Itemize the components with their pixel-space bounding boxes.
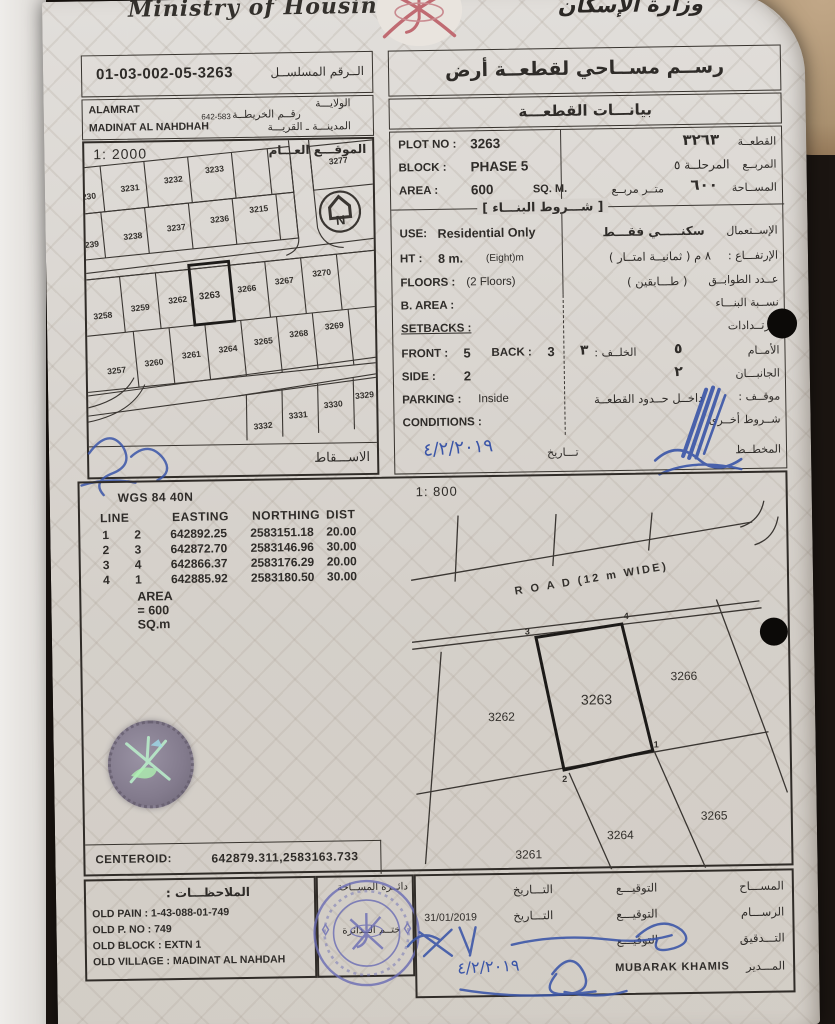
back-label-ar: الخلــف : <box>594 346 636 360</box>
cell: 1 <box>135 573 142 587</box>
floors-label: FLOORS : <box>400 277 455 290</box>
front-label: FRONT : <box>401 348 448 361</box>
drawing-title: رســم مســاحي لقطعــة أرض <box>389 54 780 82</box>
col-easting: EASTING <box>172 509 229 524</box>
side-value-ar: ٢ <box>674 364 683 380</box>
use-value-ar: سكنـــــي فقـــط <box>602 224 704 240</box>
svg-text:3259: 3259 <box>130 302 150 314</box>
notes-title: الملاحظـــات : <box>166 885 250 900</box>
handwritten-date: ٤/٢/٢٠١٩ <box>422 435 493 461</box>
datum-label: WGS 84 40N <box>118 490 194 505</box>
plan-plot-right: 3266 <box>670 669 697 683</box>
plot-no-label: PLOT NO : <box>398 139 456 152</box>
cell: 2583176.29 <box>251 555 315 570</box>
corner-4: 4 <box>624 611 629 621</box>
centeroid-value: 642879.311,2583163.733 <box>211 849 358 865</box>
serial-number-value: 01-03-002-05-3263 <box>96 64 233 83</box>
area-label: AREA : <box>399 185 438 198</box>
note-line: OLD P. NO : 749 <box>92 923 171 936</box>
plan-plot-bottom-mid: 3264 <box>607 828 634 842</box>
location-box: ALAMRAT MADINAT AL NAHDHAH الولايـــة رق… <box>81 95 374 141</box>
cell: 1 <box>102 528 109 542</box>
area-unit-ar: متــر مربــع <box>611 182 664 196</box>
area-label-ar: المســاحة <box>732 181 777 195</box>
svg-text:3265: 3265 <box>253 335 273 347</box>
area-note: AREA = 600 SQ.m <box>137 589 173 632</box>
plot-no-value-ar: ٣٢٦٣ <box>682 130 719 149</box>
cell: 4 <box>135 558 142 572</box>
height-label: HT : <box>400 253 423 265</box>
north-arrow-icon: N <box>318 190 362 234</box>
conditions-label: CONDITIONS : <box>402 416 481 429</box>
plot-no-label-ar: القطعــة <box>737 135 776 149</box>
wilayat-value: ALAMRAT <box>89 104 140 117</box>
plot-data-header: بيانـــات القطعـــة <box>390 98 781 122</box>
svg-text:3263: 3263 <box>198 289 220 302</box>
cell: 20.00 <box>326 524 356 538</box>
cell: 642872.70 <box>170 541 227 556</box>
svg-text:3269: 3269 <box>324 320 344 332</box>
plot-no-value: 3263 <box>470 136 500 151</box>
svg-text:3215: 3215 <box>249 203 269 215</box>
col-northing: NORTHING <box>252 508 320 523</box>
document-paper: Ministry of Housing وزارة الإسكان 01-03-… <box>42 0 820 1024</box>
cell: 2583180.50 <box>251 570 315 585</box>
cell: 2 <box>102 543 109 557</box>
note-line: OLD VILLAGE : MADINAT AL NAHDAH <box>93 953 285 968</box>
signature-label: التوقيـــع <box>616 880 658 895</box>
punch-hole <box>767 308 797 338</box>
floors-value: (2 Floors) <box>466 276 515 289</box>
cell: 30.00 <box>327 569 357 583</box>
svg-text:3266: 3266 <box>237 283 257 295</box>
column-divider-dashed <box>563 295 566 435</box>
built-area-label-ar: نســبة البنـــاء <box>715 296 778 310</box>
plan-plot-left: 3262 <box>488 710 515 724</box>
front-label-ar: الأمــام <box>748 344 780 357</box>
underlying-paper-edge <box>0 0 46 1024</box>
svg-text:3232: 3232 <box>163 174 183 186</box>
corner-2: 2 <box>562 774 567 784</box>
height-label-ar: الإرتفـــاع : <box>728 249 778 263</box>
cell: 2583151.18 <box>250 525 314 540</box>
cell: 2 <box>134 528 141 542</box>
floors-label-ar: عــدد الطوابــق <box>708 273 778 287</box>
site-plan: R O A D (12 m WIDE) 3263 3262 3266 3261 … <box>410 486 793 872</box>
plan-plot-bottom-left: 3261 <box>515 847 542 861</box>
drawing-title-box: رســم مســاحي لقطعــة أرض <box>388 44 782 96</box>
cell: 2583146.96 <box>250 540 314 555</box>
area-unit: SQ. M. <box>533 183 567 196</box>
ministry-title-ar: وزارة الإسكان <box>529 0 735 18</box>
plot-data-header-box: بيانـــات القطعـــة <box>388 92 781 129</box>
city-label: المدينـــة ـ القريـــة <box>267 120 351 133</box>
svg-text:3332: 3332 <box>253 420 273 432</box>
front-value-ar: ٥ <box>674 341 683 357</box>
scanned-survey-document: Ministry of Housing وزارة الإسكان 01-03-… <box>0 0 835 1024</box>
svg-text:3331: 3331 <box>288 409 308 421</box>
height-note: (Eight)m <box>486 253 524 265</box>
area-value-ar: ٦٠٠ <box>690 175 718 193</box>
cell: 642866.37 <box>171 556 228 571</box>
svg-text:3261: 3261 <box>181 349 201 361</box>
back-label: BACK : <box>491 346 531 359</box>
side-value: 2 <box>464 368 471 383</box>
parking-label: PARKING : <box>402 394 461 407</box>
signatures-box: المســـاح التوقيـــع التـــاريخ الرســـا… <box>414 868 796 998</box>
serial-number-label: الــرقم المسلســل <box>270 64 364 79</box>
side-label: SIDE : <box>402 371 436 384</box>
svg-text:3239: 3239 <box>84 239 100 251</box>
svg-text:3262: 3262 <box>168 294 188 306</box>
svg-text:3238: 3238 <box>123 230 143 242</box>
setbacks-label: SETBACKS : <box>401 322 471 335</box>
note-line: OLD BLOCK : EXTN 1 <box>93 939 202 953</box>
height-value: 8 m. <box>438 251 463 265</box>
svg-text:3330: 3330 <box>323 398 343 410</box>
svg-text:3257: 3257 <box>107 364 127 376</box>
hologram-sticker <box>107 720 194 809</box>
floors-value-ar: ( طـــابقين ) <box>627 274 688 289</box>
svg-text:3231: 3231 <box>120 182 140 194</box>
svg-text:3277: 3277 <box>328 155 348 167</box>
svg-text:3329: 3329 <box>355 389 375 401</box>
corner-3: 3 <box>525 626 530 636</box>
svg-text:3268: 3268 <box>289 327 309 339</box>
svg-text:3236: 3236 <box>210 213 230 225</box>
back-value-ar: ٣ <box>580 343 589 359</box>
survey-box: WGS 84 40N 1: 800 LINE EASTING NORTHING … <box>77 470 793 876</box>
svg-text:3264: 3264 <box>218 343 238 355</box>
map-number-label: رقــم الخريطــة <box>232 108 301 121</box>
building-conditions-header: [ شـــروط البنـــاء ] <box>477 198 608 215</box>
front-value: 5 <box>463 345 470 360</box>
cell: 30.00 <box>326 539 356 553</box>
cell: 4 <box>103 573 110 587</box>
use-label-ar: الإســتعمال <box>726 224 778 238</box>
projection-label: الاســـقاط <box>314 450 370 466</box>
cell: 20.00 <box>327 554 357 568</box>
use-label: USE: <box>400 228 428 240</box>
notes-box: الملاحظـــات : OLD PAIN : 1-43-088-01-74… <box>84 876 318 982</box>
plan-plot-main: 3263 <box>581 691 613 707</box>
serial-number-box: 01-03-002-05-3263 الــرقم المسلســل <box>81 51 374 98</box>
stamp-box: دائــرة المســاحة ختــم الــدائرة <box>316 874 416 978</box>
cell: 642892.25 <box>170 526 227 541</box>
map-number-value: 642-583 <box>201 112 230 121</box>
corner-1: 1 <box>654 739 659 749</box>
col-dist: DIST <box>326 507 356 521</box>
plot-grid-map: 3230 3231 3232 3233 3277 3239 3238 3237 … <box>84 139 378 447</box>
svg-text:3233: 3233 <box>205 163 225 175</box>
svg-text:3237: 3237 <box>166 222 186 234</box>
block-label-ar: المربــع <box>742 158 776 172</box>
oman-emblem-icon <box>370 0 469 47</box>
parking-value: Inside <box>478 393 509 405</box>
use-value: Residential Only <box>438 225 536 241</box>
wilayat-label: الولايـــة <box>315 97 350 110</box>
back-value: 3 <box>547 344 554 359</box>
block-label: BLOCK : <box>398 162 446 175</box>
city-value: MADINAT AL NAHDHAH <box>89 120 209 134</box>
road-label: R O A D (12 m WIDE) <box>514 560 669 597</box>
centeroid-label: CENTEROID: <box>95 853 172 866</box>
plan-plot-bottom-right: 3265 <box>701 808 728 822</box>
date-label: التـــاريخ <box>513 882 553 897</box>
block-value: PHASE 5 <box>470 158 528 174</box>
svg-text:3260: 3260 <box>144 357 164 369</box>
svg-text:3267: 3267 <box>274 275 294 287</box>
note-line: OLD PAIN : 1-43-088-01-749 <box>92 906 229 920</box>
col-line: LINE <box>100 511 130 525</box>
svg-text:3258: 3258 <box>93 310 113 322</box>
cell: 3 <box>134 543 141 557</box>
svg-text:3270: 3270 <box>312 267 332 279</box>
svg-text:N: N <box>335 212 346 228</box>
surveyor-label: المســـاح <box>739 879 784 894</box>
ministry-title-en: Ministry of Housing <box>128 0 394 23</box>
built-area-label: B. AREA : <box>401 300 455 313</box>
svg-text:3230: 3230 <box>84 191 97 203</box>
block-value-ar: المرحلــة ٥ <box>674 157 730 172</box>
signature-scribbles-ink <box>401 912 812 1008</box>
height-value-ar: ٨ م ( ثمانيــة امتــار ) <box>609 249 711 265</box>
cell: 642885.92 <box>171 571 228 586</box>
date-label-ar: تـــاريخ <box>547 446 579 459</box>
cell: 3 <box>103 558 110 572</box>
area-value: 600 <box>471 182 494 197</box>
